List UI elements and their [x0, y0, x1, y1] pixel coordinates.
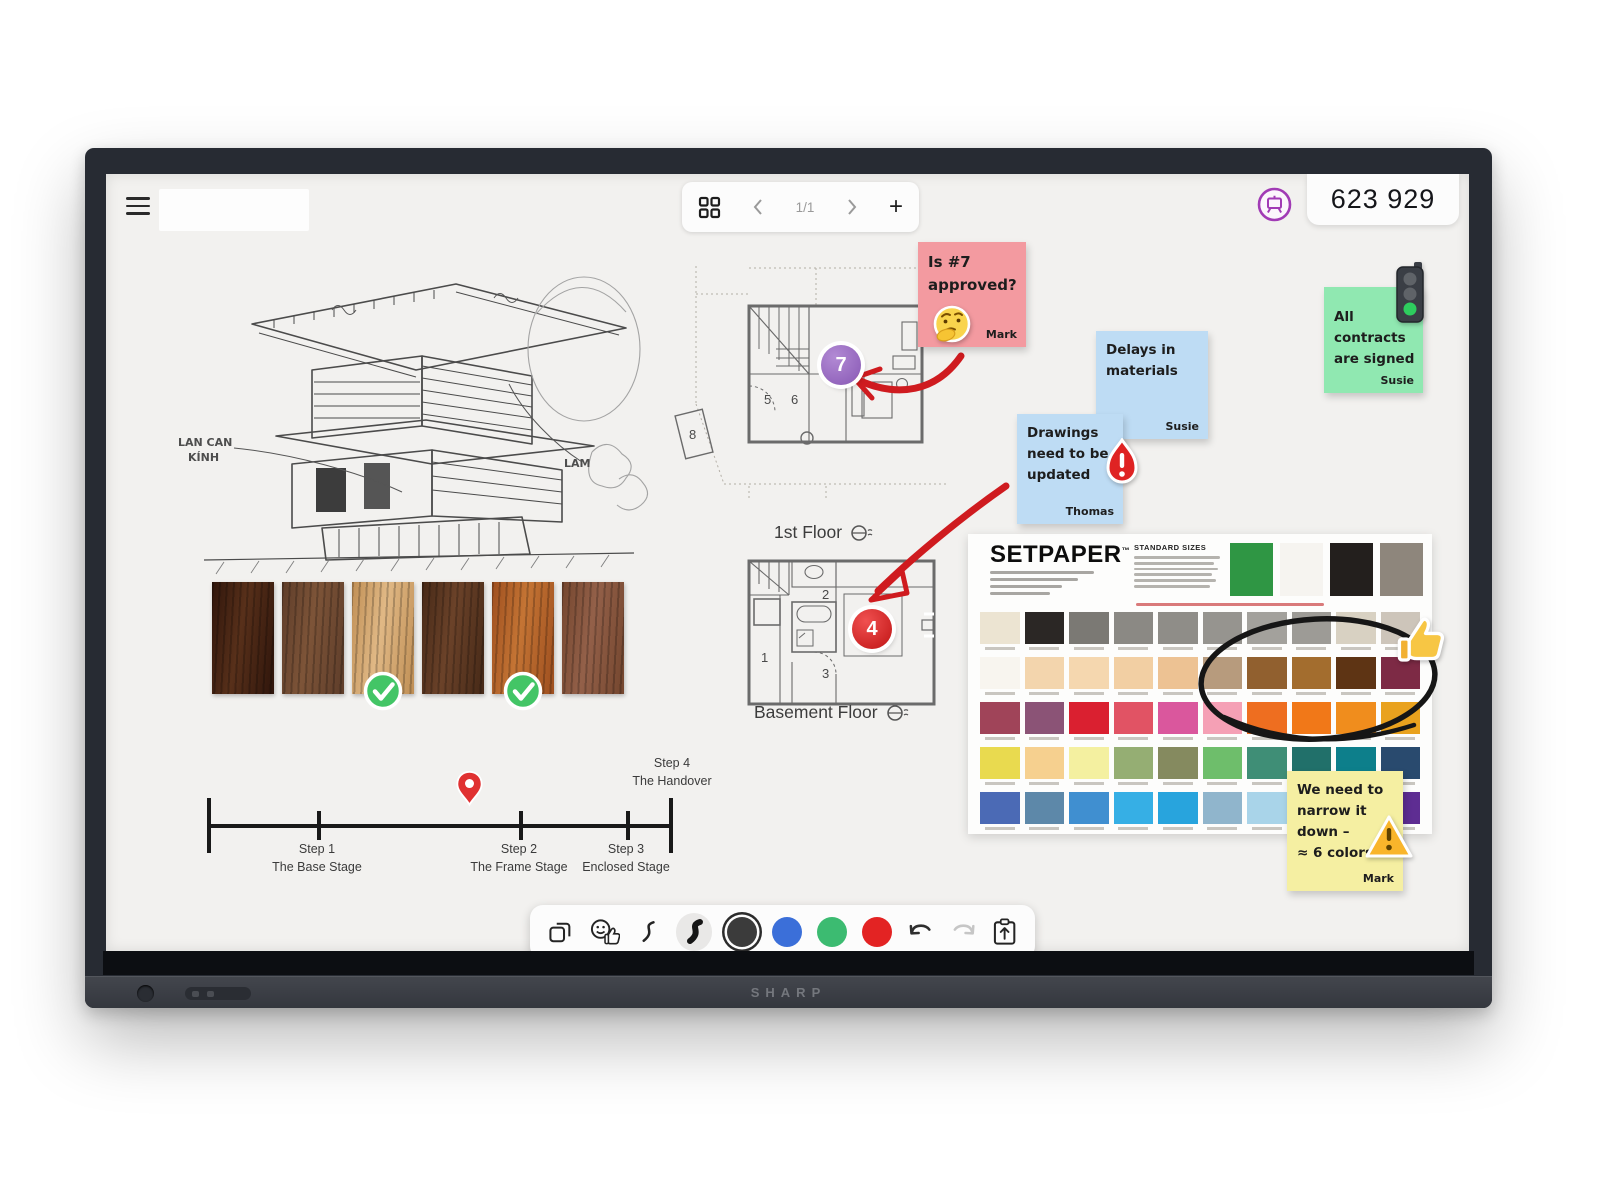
- bezel-chin: SHARP: [85, 976, 1492, 1008]
- room-number: 1: [761, 650, 768, 665]
- paint-swatch: [1025, 657, 1065, 702]
- red-note-text: [1136, 603, 1324, 607]
- device-brand: SHARP: [85, 985, 1492, 1000]
- paint-header-swatch: [1330, 543, 1373, 596]
- export-clipboard-icon[interactable]: [992, 917, 1017, 947]
- paint-swatch: [1247, 702, 1287, 747]
- paint-swatch-label: [1207, 737, 1237, 740]
- paint-swatch-label: [1296, 647, 1326, 650]
- basement-floor-label: Basement Floor: [754, 702, 912, 723]
- paint-swatch-label: [1074, 692, 1104, 695]
- paint-swatch: [1114, 702, 1154, 747]
- marker-badge-7[interactable]: 7: [821, 345, 861, 385]
- timeline-step-4: Step 4The Handover: [597, 754, 747, 790]
- paint-swatch-label: [1118, 647, 1148, 650]
- paint-header-swatch: [1280, 543, 1323, 596]
- paint-swatch: [1114, 612, 1154, 657]
- paint-swatch-label: [1074, 647, 1104, 650]
- sticker-emoji-icon[interactable]: [589, 917, 620, 947]
- project-timeline: Step 1The Base Stage Step 2The Frame Sta…: [207, 762, 673, 877]
- paint-header-swatch: [1380, 543, 1423, 596]
- urgent-flame-icon[interactable]: [1100, 438, 1144, 486]
- first-floor-plan: 5 6 8: [666, 254, 956, 534]
- paint-swatch-label: [1163, 737, 1193, 740]
- page-navigation: 1/1 +: [682, 182, 919, 232]
- sketch-annotation: LAM: [564, 457, 590, 470]
- paint-swatch-label: [1207, 782, 1237, 785]
- wood-swatch[interactable]: [212, 582, 274, 694]
- paint-swatch-label: [1385, 737, 1415, 740]
- address-text: [990, 578, 1078, 582]
- paint-swatch-label: [1341, 647, 1371, 650]
- wood-swatch[interactable]: [352, 582, 414, 694]
- paint-swatch: [1292, 702, 1332, 747]
- paint-swatch: [1381, 702, 1421, 747]
- paint-swatch: [980, 792, 1020, 837]
- first-floor-label: 1st Floor: [774, 522, 876, 543]
- paint-swatch-label: [1118, 827, 1148, 830]
- paint-swatch-label: [1118, 692, 1148, 695]
- paint-swatch: [1203, 612, 1243, 657]
- paint-swatch: [1158, 657, 1198, 702]
- standard-sizes-title: STANDARD SIZES: [1134, 543, 1220, 552]
- timeline-step-3: Step 3Enclosed Stage: [551, 840, 701, 876]
- paint-swatch: [1292, 657, 1332, 702]
- paint-chart-brand: SETPAPER™: [990, 543, 1120, 567]
- pen-thin-icon[interactable]: [635, 918, 660, 946]
- paint-swatch-label: [1207, 827, 1237, 830]
- map-pin-icon[interactable]: [456, 770, 483, 807]
- paint-swatch-label: [985, 692, 1015, 695]
- paint-swatch-label: [1163, 782, 1193, 785]
- approved-check-icon[interactable]: [502, 670, 544, 712]
- paint-swatch-label: [1207, 647, 1237, 650]
- paint-swatch: [980, 612, 1020, 657]
- paint-header-swatch: [1230, 543, 1273, 596]
- timeline-rail: [207, 824, 673, 828]
- paint-swatch: [980, 657, 1020, 702]
- marker-badge-4[interactable]: 4: [852, 609, 892, 649]
- session-code[interactable]: 623 929: [1307, 174, 1459, 225]
- address-text: [990, 592, 1050, 596]
- redo-icon[interactable]: [950, 920, 977, 944]
- next-page-icon[interactable]: [846, 198, 858, 216]
- paint-swatch-label: [1341, 737, 1371, 740]
- pen-color-red[interactable]: [862, 917, 892, 947]
- paint-swatch-label: [1385, 692, 1415, 695]
- paint-swatch-label: [1029, 647, 1059, 650]
- paint-swatch-label: [1074, 827, 1104, 830]
- room-number: 5: [764, 392, 771, 407]
- warning-sign-emoji[interactable]: [1364, 814, 1414, 860]
- paint-swatch-label: [1296, 737, 1326, 740]
- sketch-annotation: KÍNH: [188, 451, 219, 464]
- paint-swatch: [1069, 657, 1109, 702]
- pen-color-black[interactable]: [727, 917, 757, 947]
- paint-swatch: [1025, 747, 1065, 792]
- paint-swatch-label: [1029, 737, 1059, 740]
- page-indicator: 1/1: [796, 200, 815, 215]
- paint-swatch-label: [1252, 647, 1282, 650]
- paint-swatch: [1247, 612, 1287, 657]
- paint-swatch-label: [1207, 692, 1237, 695]
- paint-swatch: [1247, 657, 1287, 702]
- paint-swatch: [1203, 702, 1243, 747]
- room-number: 6: [791, 392, 798, 407]
- paint-swatch: [980, 747, 1020, 792]
- thinking-face-emoji[interactable]: [931, 303, 973, 345]
- paint-swatch-label: [985, 737, 1015, 740]
- size-line: [1134, 573, 1212, 576]
- paint-swatch-label: [985, 647, 1015, 650]
- paint-swatch-label: [1252, 692, 1282, 695]
- duplicate-icon[interactable]: [548, 919, 574, 946]
- paint-swatch: [1114, 792, 1154, 837]
- pen-color-green[interactable]: [817, 917, 847, 947]
- compass-icon: [850, 524, 876, 542]
- paint-swatch: [1025, 612, 1065, 657]
- pen-color-blue[interactable]: [772, 917, 802, 947]
- undo-icon[interactable]: [907, 920, 934, 944]
- paint-swatch-label: [985, 827, 1015, 830]
- previous-page-icon[interactable]: [752, 198, 764, 216]
- cast-icon[interactable]: [1257, 187, 1292, 222]
- paint-swatch: [1203, 792, 1243, 837]
- paint-swatch: [1247, 792, 1287, 837]
- basement-floor-plan: 1 2 3: [726, 544, 976, 714]
- size-line: [1134, 568, 1218, 571]
- sketch-annotation: LAN CAN: [178, 436, 232, 449]
- paint-swatch-label: [1029, 782, 1059, 785]
- paint-swatch: [1158, 792, 1198, 837]
- room-number: 3: [822, 666, 829, 681]
- paint-swatch-label: [1118, 782, 1148, 785]
- wood-swatch[interactable]: [492, 582, 554, 694]
- paint-swatch-label: [1341, 692, 1371, 695]
- whiteboard-logo-placeholder: [159, 189, 309, 231]
- paint-swatch-label: [1163, 827, 1193, 830]
- paint-swatch: [1203, 747, 1243, 792]
- approved-check-icon[interactable]: [362, 670, 404, 712]
- paint-swatch-label: [1029, 692, 1059, 695]
- bezel-strip: [103, 951, 1474, 975]
- paint-swatch: [1292, 612, 1332, 657]
- paint-swatch-label: [1163, 692, 1193, 695]
- paint-swatch: [1336, 612, 1376, 657]
- paint-swatch: [1158, 702, 1198, 747]
- paint-swatch-label: [1074, 737, 1104, 740]
- sharp-display-bezel: 1/1 + 623 929: [85, 148, 1492, 1008]
- paint-swatch: [1069, 792, 1109, 837]
- thumbs-up-emoji[interactable]: [1391, 611, 1447, 667]
- address-text: [990, 571, 1094, 575]
- paint-swatch: [1025, 702, 1065, 747]
- paint-swatch: [1247, 747, 1287, 792]
- drawing-toolbar: [530, 905, 1035, 951]
- paint-swatch-label: [1252, 737, 1282, 740]
- green-traffic-light-icon[interactable]: [1395, 262, 1425, 324]
- compass-icon: [886, 704, 912, 722]
- pen-color-palette: [727, 917, 892, 947]
- paint-swatch: [1203, 657, 1243, 702]
- pen-bold-icon-selected[interactable]: [676, 913, 713, 951]
- paint-swatch: [1114, 657, 1154, 702]
- paint-swatch: [1069, 702, 1109, 747]
- paint-swatch-label: [1074, 782, 1104, 785]
- paint-swatch-label: [1118, 737, 1148, 740]
- paint-swatch-label: [1029, 827, 1059, 830]
- paint-swatch: [1069, 612, 1109, 657]
- paint-swatch: [1069, 747, 1109, 792]
- room-number: 8: [689, 427, 696, 442]
- timeline-step-1: Step 1The Base Stage: [242, 840, 392, 876]
- wood-swatch-row: [212, 582, 624, 694]
- paint-swatch: [1336, 657, 1376, 702]
- paint-swatch-label: [1163, 647, 1193, 650]
- paint-swatch: [980, 702, 1020, 747]
- header-swatches: [1230, 543, 1423, 596]
- wood-swatch[interactable]: [282, 582, 344, 694]
- whiteboard-canvas[interactable]: 1/1 + 623 929: [106, 174, 1469, 951]
- address-text: [990, 585, 1062, 589]
- size-line: [1134, 556, 1220, 559]
- wood-swatch[interactable]: [562, 582, 624, 694]
- house-sketch: LAN CAN KÍNH LAM: [164, 254, 664, 584]
- size-line: [1134, 562, 1214, 565]
- paint-swatch-label: [1252, 827, 1282, 830]
- add-page-icon[interactable]: +: [889, 195, 903, 219]
- paint-swatch: [1158, 612, 1198, 657]
- paint-swatch-label: [1252, 782, 1282, 785]
- room-number: 2: [822, 587, 829, 602]
- paint-swatch-label: [1296, 692, 1326, 695]
- paint-swatch-label: [985, 782, 1015, 785]
- paint-swatch: [1158, 747, 1198, 792]
- size-line: [1134, 579, 1216, 582]
- paint-swatch: [1025, 792, 1065, 837]
- wood-swatch[interactable]: [422, 582, 484, 694]
- paint-swatch: [1114, 747, 1154, 792]
- menu-icon[interactable]: [126, 197, 150, 215]
- size-line: [1134, 585, 1210, 588]
- paint-swatch: [1336, 702, 1376, 747]
- grid-view-icon[interactable]: [698, 196, 721, 219]
